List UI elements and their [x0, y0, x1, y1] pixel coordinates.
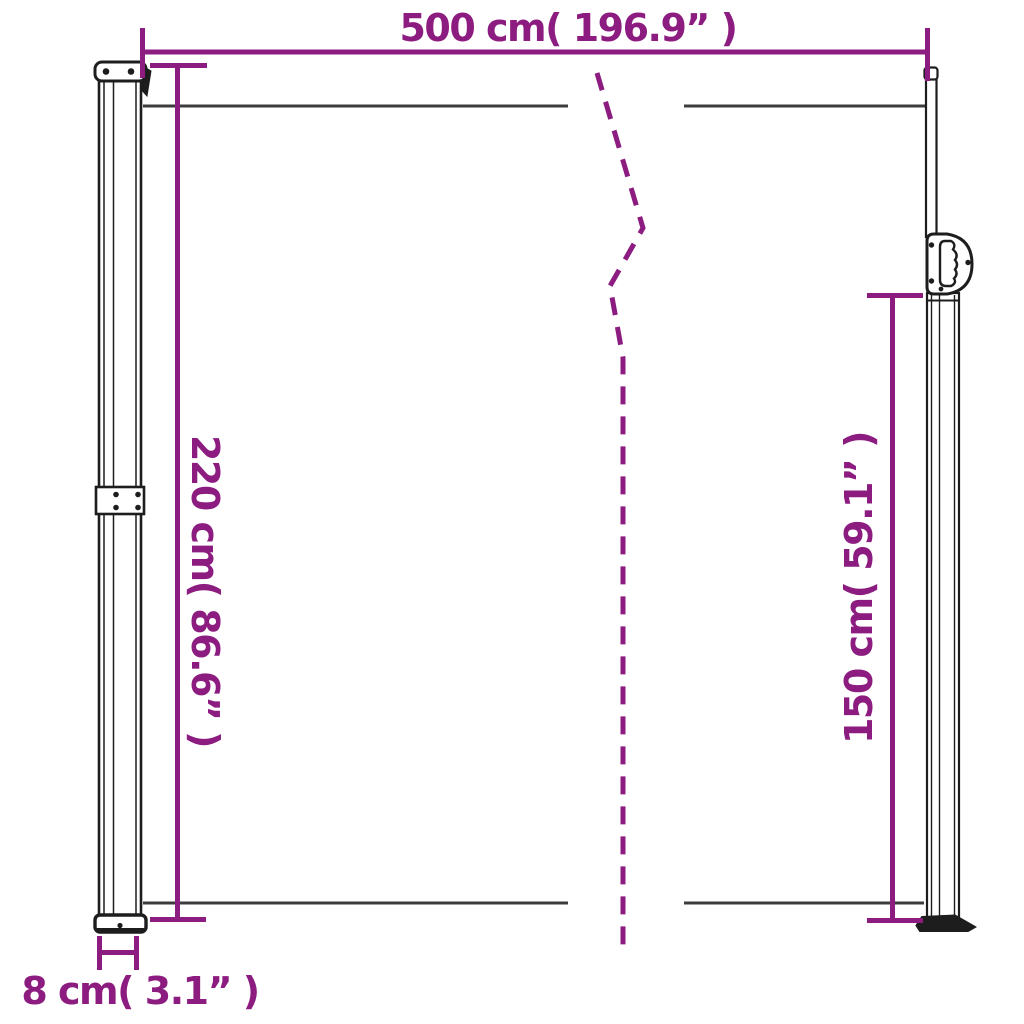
- handle-screw-1: [929, 242, 934, 247]
- right-height-dimension-label: 150 cm( 59.1” ): [837, 432, 881, 744]
- break-dashed-line: [597, 73, 643, 948]
- top-cap-screw-right: [128, 68, 135, 75]
- depth-dimension-label: 8 cm( 3.1” ): [21, 969, 258, 1013]
- handle-grip-cutout: [940, 241, 957, 286]
- handle-screw-2: [965, 260, 970, 265]
- awning-dimension-diagram: 500 cm( 196.9” ) 220 cm( 86.6” ) 150 cm(…: [0, 0, 1024, 1024]
- bracket-screw-4: [135, 505, 141, 511]
- left-cassette-pole: [95, 62, 151, 932]
- right-support-pole: [917, 68, 976, 932]
- right-pole-base-plate: [917, 916, 976, 932]
- bottom-cap-screw: [117, 923, 122, 928]
- width-dimension-label: 500 cm( 196.9” ): [399, 6, 736, 50]
- left-height-dimension-label: 220 cm( 86.6” ): [183, 435, 227, 747]
- right-pole-upper: [926, 73, 937, 237]
- bracket-screw-3: [113, 505, 119, 511]
- handle-screw-4: [939, 287, 944, 292]
- bracket-screw-2: [135, 492, 141, 498]
- bracket-screw-1: [113, 492, 119, 498]
- top-cap-screw-left: [103, 68, 110, 75]
- left-pole-top-cap: [95, 62, 146, 81]
- dimension-drawing: 500 cm( 196.9” ) 220 cm( 86.6” ) 150 cm(…: [0, 0, 1024, 1024]
- handle-screw-3: [929, 278, 934, 283]
